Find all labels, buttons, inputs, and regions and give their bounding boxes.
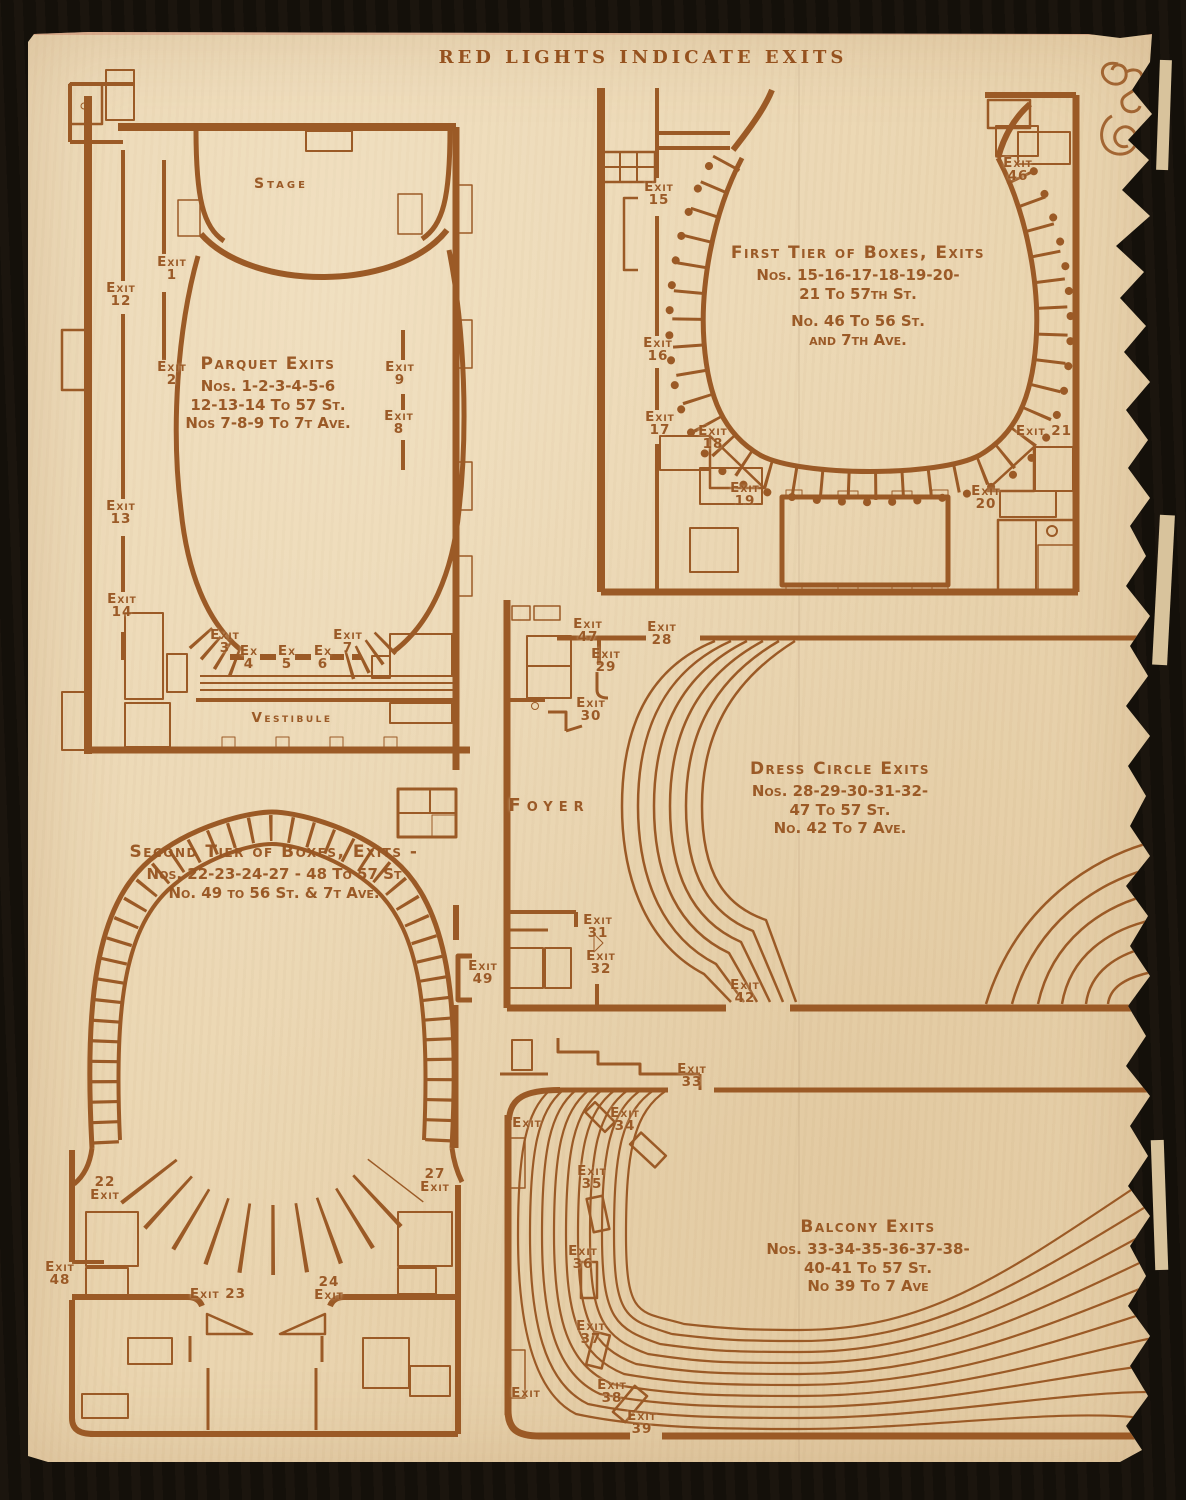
torn-paper-fragment <box>1156 60 1172 170</box>
first-tier-linework <box>601 88 1078 592</box>
printers-ornament-icon <box>1102 63 1142 154</box>
torn-paper-fragment <box>1152 515 1175 666</box>
second-tier-linework <box>72 789 472 1434</box>
page-title: RED LIGHTS INDICATE EXITS <box>439 47 848 68</box>
paper-sheet <box>28 32 1152 1462</box>
torn-paper-fragment <box>1151 1140 1169 1270</box>
parquet-linework <box>62 70 472 770</box>
balcony-linework <box>500 1038 1152 1436</box>
floor-plan-linework <box>28 32 1152 1462</box>
dress-circle-linework <box>505 600 1152 1008</box>
scanned-program-page: RED LIGHTS INDICATE EXITS Parquet ExitsN… <box>0 0 1186 1500</box>
